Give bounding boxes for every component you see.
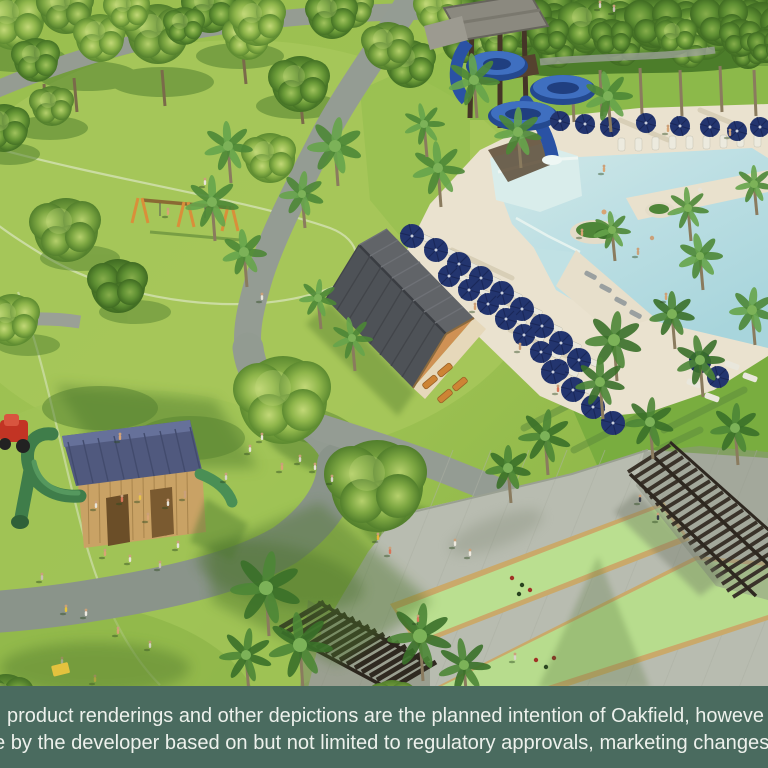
svg-text:e by the developer based on bu: e by the developer based on but not limi… [0, 731, 768, 754]
svg-text:s, product renderings and othe: s, product renderings and other depictio… [0, 704, 764, 727]
